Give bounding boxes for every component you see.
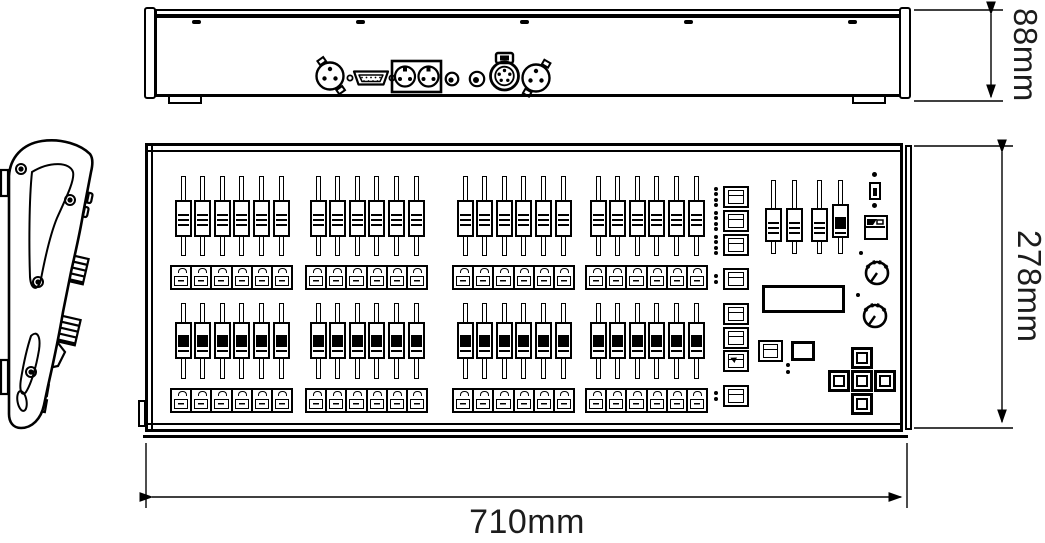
dimension-label-depth: 278mm (1010, 230, 1045, 343)
fader-grip-line (593, 350, 604, 352)
rear-foot (168, 96, 202, 104)
fader-grip (835, 217, 846, 229)
technical-drawing-canvas: 88mm 278mm 710mm (0, 0, 1045, 543)
fader-cap (388, 200, 405, 237)
fader-button (494, 390, 512, 411)
xlr-3pin-icon (523, 60, 551, 97)
fader-grip (612, 335, 623, 347)
fader-button (515, 390, 533, 411)
fader-cap (668, 200, 685, 237)
fader-button (273, 390, 291, 411)
fader-cap (590, 322, 607, 359)
fader-grip-line (558, 350, 569, 352)
fader-button-strip (305, 265, 428, 290)
led-dot (786, 363, 790, 367)
fader-button (454, 390, 472, 411)
fader-grip (256, 335, 267, 347)
fader-grip (789, 222, 800, 237)
panel-left-bracket (138, 400, 146, 427)
fader-grip (352, 335, 363, 347)
side-tab (1, 360, 8, 394)
fader-cap (629, 322, 646, 359)
dpad-down-button (851, 393, 873, 415)
fader-button (454, 267, 472, 288)
fader-button-strip (452, 265, 575, 290)
fader-button (494, 267, 512, 288)
fader-button (212, 267, 230, 288)
fader-grip (632, 214, 643, 229)
fader-grip (518, 335, 529, 347)
fader-button (627, 390, 645, 411)
fader-cap (457, 200, 474, 237)
fader-cap (310, 322, 327, 359)
fader-grip (391, 214, 402, 229)
fader-grip-line (371, 350, 382, 352)
side-tab (1, 170, 8, 196)
fader-button (474, 390, 492, 411)
arrow-icon (729, 355, 737, 363)
fader-button (347, 267, 365, 288)
led-dot (872, 203, 877, 208)
fader-grip-line (651, 350, 662, 352)
fader-cap (368, 200, 385, 237)
fader-cap (368, 322, 385, 359)
fader-cap (496, 200, 513, 237)
fader-grip (651, 214, 662, 229)
fader-button (648, 267, 666, 288)
led-dot (714, 227, 718, 231)
fader-button-strip (452, 388, 575, 413)
rotary-knob-icon (862, 258, 892, 288)
fader-grip (217, 335, 228, 347)
dimension-label-height: 88mm (1006, 8, 1044, 102)
fader-button (474, 267, 492, 288)
lcd-display (762, 285, 845, 313)
fader-cap (273, 200, 290, 237)
flag-icon (866, 217, 885, 237)
led-dot (872, 172, 877, 177)
panel-bottom-line (148, 423, 900, 425)
fader-grip (558, 335, 569, 347)
fader-grip (632, 335, 643, 347)
fader-grip-line (313, 350, 324, 352)
fader-grip (197, 214, 208, 229)
rear-connectors (300, 50, 560, 102)
fader-cap (668, 322, 685, 359)
fader-cap (609, 322, 626, 359)
fader-grip (651, 335, 662, 347)
rotary-knob-icon (860, 301, 890, 331)
fader-grip-line (178, 350, 189, 352)
fader-grip (178, 214, 189, 229)
panel-top-line (148, 150, 900, 152)
fader-cap (273, 322, 290, 359)
scene-key (723, 268, 749, 290)
fader-grip (558, 214, 569, 229)
fader-cap (688, 322, 705, 359)
fader-button (555, 390, 573, 411)
fader-grip (217, 214, 228, 229)
fader-button (347, 390, 365, 411)
fader-cap (233, 322, 250, 359)
panel-left-line (151, 146, 153, 429)
fader-button (607, 267, 625, 288)
power-indicator-mark (873, 188, 877, 196)
fader-cap (214, 200, 231, 237)
fader-grip-line (276, 350, 287, 352)
dpad-left-button (828, 370, 850, 392)
fader-button (668, 390, 686, 411)
fader-grip (391, 335, 402, 347)
scene-key (723, 186, 749, 208)
fader-grip (499, 335, 510, 347)
scene-key (723, 210, 749, 232)
scene-key (723, 385, 749, 407)
fader-button (172, 267, 190, 288)
fader-button (555, 267, 573, 288)
fader-button (212, 390, 230, 411)
fader-grip (256, 214, 267, 229)
fader-grip (593, 335, 604, 347)
fader-button (388, 390, 406, 411)
fader-button-strip (585, 388, 708, 413)
fader-button (273, 267, 291, 288)
led-dot (856, 293, 860, 297)
scene-key (723, 303, 749, 325)
scene-key (723, 327, 749, 349)
fader-grip (197, 335, 208, 347)
fader-grip (332, 214, 343, 229)
led-dot (714, 280, 718, 284)
fader-button (327, 390, 345, 411)
fader-grip (411, 335, 422, 347)
rear-end-cap-left (144, 7, 156, 99)
fader-grip (371, 214, 382, 229)
fader-cap (496, 322, 513, 359)
rear-screw (684, 20, 693, 24)
fader-grip (371, 335, 382, 347)
fader-cap (214, 322, 231, 359)
fader-grip-line (460, 350, 471, 352)
fader-cap (329, 322, 346, 359)
fader-button-strip (170, 388, 293, 413)
rear-foot (852, 96, 886, 104)
led-dot (786, 370, 790, 374)
fader-grip (411, 214, 422, 229)
fader-cap (175, 200, 192, 237)
fader-grip (479, 335, 490, 347)
fader-grip (671, 335, 682, 347)
fader-cap (408, 200, 425, 237)
fader-grip (276, 335, 287, 347)
fader-grip (352, 214, 363, 229)
fader-button (233, 390, 251, 411)
fader-grip-line (217, 350, 228, 352)
led-dot (714, 246, 718, 250)
fader-grip (538, 335, 549, 347)
fader-button (515, 267, 533, 288)
dimension-label-width: 710mm (457, 503, 597, 542)
fader-button (587, 390, 605, 411)
fader-button (368, 267, 386, 288)
fader-cap (648, 200, 665, 237)
fader-cap (555, 200, 572, 237)
fader-grip (479, 214, 490, 229)
fader-grip (460, 214, 471, 229)
fader-button (408, 267, 426, 288)
fader-cap (253, 322, 270, 359)
front-rail-line (143, 435, 908, 438)
fader-grip (236, 214, 247, 229)
led-dot (859, 251, 863, 255)
fader-grip-line (538, 350, 549, 352)
fader-button (607, 390, 625, 411)
fader-cap (476, 200, 493, 237)
fader-button (535, 390, 553, 411)
din-pair-icon (392, 61, 441, 92)
fader-cap (349, 200, 366, 237)
scene-key (723, 234, 749, 256)
fader-cap (233, 200, 250, 237)
fader-grip (518, 214, 529, 229)
rear-top-band (157, 14, 899, 18)
fader-grip-line (236, 350, 247, 352)
fader-cap (590, 200, 607, 237)
fader-grip (768, 222, 779, 237)
fader-button (668, 267, 686, 288)
fader-button (368, 390, 386, 411)
dpad-right-button (874, 370, 896, 392)
fader-cap (476, 322, 493, 359)
scene-key (723, 350, 749, 372)
fader-cap (648, 322, 665, 359)
led-dot (714, 198, 718, 202)
fader-cap (388, 322, 405, 359)
small-jack-icon (446, 73, 459, 86)
fader-grip-line (671, 350, 682, 352)
fader-cap (175, 322, 192, 359)
fader-grip (313, 335, 324, 347)
fader-grip (538, 214, 549, 229)
fader-grip-line (479, 350, 490, 352)
fader-cap (609, 200, 626, 237)
fader-cap (515, 200, 532, 237)
fader-grip (612, 214, 623, 229)
panel-right-rail (905, 145, 912, 430)
led-dot (714, 222, 718, 226)
fader-button-strip (585, 265, 708, 290)
master-fader-cap (786, 208, 803, 242)
fader-button (587, 267, 605, 288)
function-button (864, 215, 888, 240)
fader-button (192, 390, 210, 411)
fader-grip (313, 214, 324, 229)
fader-button (172, 390, 190, 411)
fader-cap (555, 322, 572, 359)
fader-button (253, 267, 271, 288)
fader-cap (194, 322, 211, 359)
fader-button (627, 267, 645, 288)
db9-serial-icon (347, 72, 394, 85)
fader-button (327, 267, 345, 288)
xlr-3pin-icon (317, 57, 345, 94)
fader-cap (629, 200, 646, 237)
fader-grip (499, 214, 510, 229)
fader-cap (535, 200, 552, 237)
fader-button (648, 390, 666, 411)
fader-grip-line (256, 350, 267, 352)
fader-button (535, 267, 553, 288)
fader-cap (329, 200, 346, 237)
dpad-center-button (851, 370, 873, 392)
fader-cap (349, 322, 366, 359)
dpad-up-button (851, 347, 873, 369)
fader-grip-line (391, 350, 402, 352)
fader-grip (814, 222, 825, 237)
fader-grip (332, 335, 343, 347)
fader-button (253, 390, 271, 411)
xlr-5pin-locking-icon (491, 53, 519, 90)
fader-grip-line (835, 232, 846, 234)
fader-button-strip (305, 388, 428, 413)
led-dot (714, 203, 718, 207)
fader-grip-line (197, 350, 208, 352)
edit-key (758, 340, 783, 362)
fader-cap (310, 200, 327, 237)
fader-cap (515, 322, 532, 359)
master-fader-cap (832, 204, 849, 238)
fader-cap (688, 200, 705, 237)
fader-grip-line (499, 350, 510, 352)
rear-screw (520, 20, 529, 24)
small-jack-icon (470, 72, 484, 86)
fader-grip (460, 335, 471, 347)
fader-button (233, 267, 251, 288)
fader-grip-line (411, 350, 422, 352)
fader-cap (457, 322, 474, 359)
fader-button (688, 267, 706, 288)
fader-cap (253, 200, 270, 237)
rear-screw (192, 20, 201, 24)
fader-grip (671, 214, 682, 229)
master-fader-cap (811, 208, 828, 242)
fader-button (688, 390, 706, 411)
fader-button (307, 267, 325, 288)
rear-end-cap-right (899, 7, 911, 99)
led-dot (714, 397, 718, 401)
side-profile-view (0, 138, 118, 436)
fader-grip (236, 335, 247, 347)
fader-grip (691, 335, 702, 347)
rear-screw (356, 20, 365, 24)
fader-button-strip (170, 265, 293, 290)
fader-grip (276, 214, 287, 229)
fader-grip (691, 214, 702, 229)
fader-cap (535, 322, 552, 359)
fader-grip-line (612, 350, 623, 352)
fader-grip-line (632, 350, 643, 352)
fader-cap (194, 200, 211, 237)
fader-button (408, 390, 426, 411)
fader-cap (408, 322, 425, 359)
fader-grip-line (518, 350, 529, 352)
fader-grip (593, 214, 604, 229)
fader-grip-line (691, 350, 702, 352)
fader-button (192, 267, 210, 288)
led-dot (714, 251, 718, 255)
fader-button (388, 267, 406, 288)
fader-button (307, 390, 325, 411)
fader-grip (178, 335, 189, 347)
fader-grip-line (332, 350, 343, 352)
power-indicator (869, 182, 881, 200)
master-fader-cap (765, 208, 782, 242)
rear-screw (848, 20, 857, 24)
fader-grip-line (352, 350, 363, 352)
blank-key (791, 341, 815, 361)
